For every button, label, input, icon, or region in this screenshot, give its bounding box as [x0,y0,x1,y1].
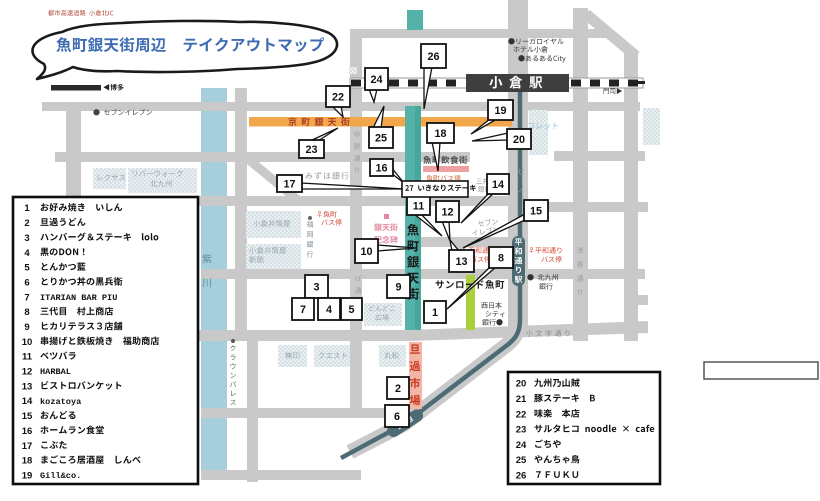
svg-text:2: 2 [395,383,401,395]
svg-text:5: 5 [348,304,354,316]
svg-text:14: 14 [22,396,33,407]
svg-text:12: 12 [441,206,453,218]
svg-text:HARBAL: HARBAL [40,367,71,377]
svg-text:21: 21 [516,394,527,405]
svg-text:7: 7 [300,304,306,316]
svg-text:15: 15 [530,205,542,217]
svg-text:11: 11 [22,352,33,363]
svg-text:18: 18 [22,456,33,467]
svg-text:14: 14 [492,179,504,191]
svg-text:7: 7 [24,292,29,303]
svg-text:12: 12 [22,367,33,378]
svg-text:20: 20 [516,379,527,390]
svg-text:26: 26 [427,51,439,63]
svg-text:24: 24 [370,74,382,86]
svg-text:24: 24 [516,440,527,451]
svg-text:17: 17 [22,441,33,452]
svg-text:25: 25 [375,132,387,144]
svg-text:Gill&co.: Gill&co. [40,471,81,481]
svg-text:kozatoya: kozatoya [40,397,81,407]
svg-text:9: 9 [395,281,401,293]
svg-text:23: 23 [305,144,317,156]
svg-text:22: 22 [332,91,344,103]
svg-text:15: 15 [22,411,33,422]
svg-text:19: 19 [494,105,506,117]
svg-text:4: 4 [24,248,30,259]
svg-text:26: 26 [516,471,527,482]
svg-text:13: 13 [455,256,467,268]
svg-text:1: 1 [24,203,30,214]
svg-text:6: 6 [24,277,29,288]
svg-text:13: 13 [22,381,33,392]
svg-text:3: 3 [24,233,29,244]
svg-text:17: 17 [283,178,295,190]
svg-text:1: 1 [432,307,438,319]
svg-text:10: 10 [22,337,33,348]
svg-text:8: 8 [498,252,504,264]
svg-text:22: 22 [516,409,527,420]
svg-text:25: 25 [516,455,527,466]
svg-text:16: 16 [375,162,387,174]
svg-text:9: 9 [24,322,29,333]
svg-text:6: 6 [394,411,400,423]
svg-text:5: 5 [24,263,30,274]
svg-text:23: 23 [516,425,527,436]
svg-text:16: 16 [22,426,33,437]
svg-text:11: 11 [413,200,424,212]
svg-text:2: 2 [24,218,29,229]
svg-text:4: 4 [326,304,332,316]
svg-text:19: 19 [22,471,33,482]
svg-text:18: 18 [434,128,446,140]
svg-text:10: 10 [360,246,372,258]
svg-text:ITARIAN BAR PIU: ITARIAN BAR PIU [40,293,117,303]
svg-text:8: 8 [24,307,29,318]
svg-text:3: 3 [313,281,319,293]
svg-text:20: 20 [513,134,525,146]
